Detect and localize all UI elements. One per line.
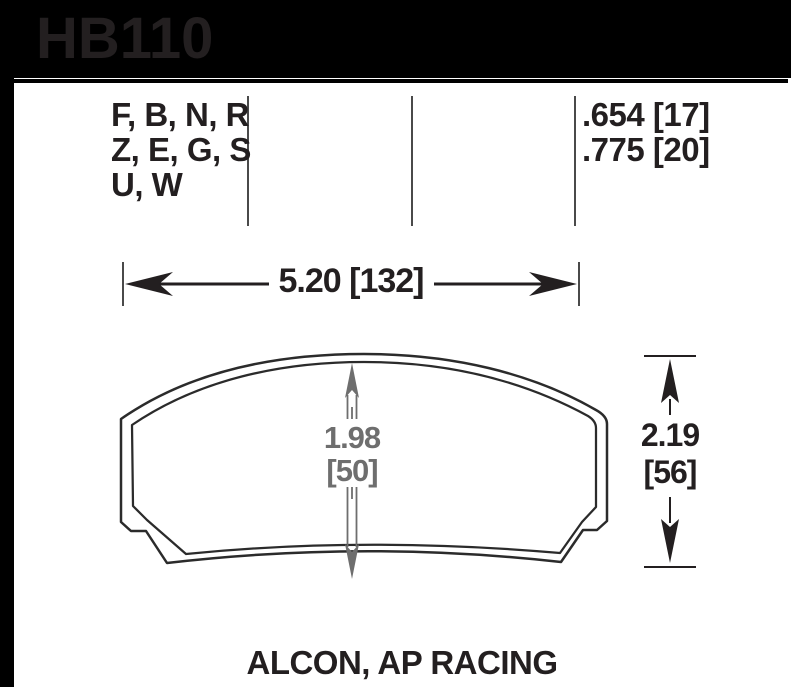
center-height-inches: 1.98 xyxy=(307,420,397,456)
catalog-spec-page: HB110 xyxy=(0,0,800,691)
arrow-down-icon xyxy=(661,519,679,563)
compound-line-3: U, W xyxy=(111,167,251,202)
thickness-line-2: .775 [20] xyxy=(582,132,710,167)
compound-line-1: F, B, N, R xyxy=(111,97,251,132)
compound-codes: F, B, N, R Z, E, G, S U, W xyxy=(111,97,251,202)
thickness-line-1: .654 [17] xyxy=(582,97,710,132)
center-height-mm: [50] xyxy=(307,453,397,489)
width-dimension-label: 5.20 [132] xyxy=(269,262,434,301)
application-caption: ALCON, AP RACING xyxy=(14,644,790,682)
table-column-ticks xyxy=(248,96,575,226)
pad-thickness-values: .654 [17] .775 [20] xyxy=(582,97,710,167)
arrow-up-icon xyxy=(661,359,679,403)
compound-line-2: Z, E, G, S xyxy=(111,132,251,167)
overall-height-inches: 2.19 xyxy=(625,417,715,454)
width-dimension-label-wrap: 5.20 [132] xyxy=(231,262,471,301)
overall-height-mm: [56] xyxy=(625,454,715,491)
